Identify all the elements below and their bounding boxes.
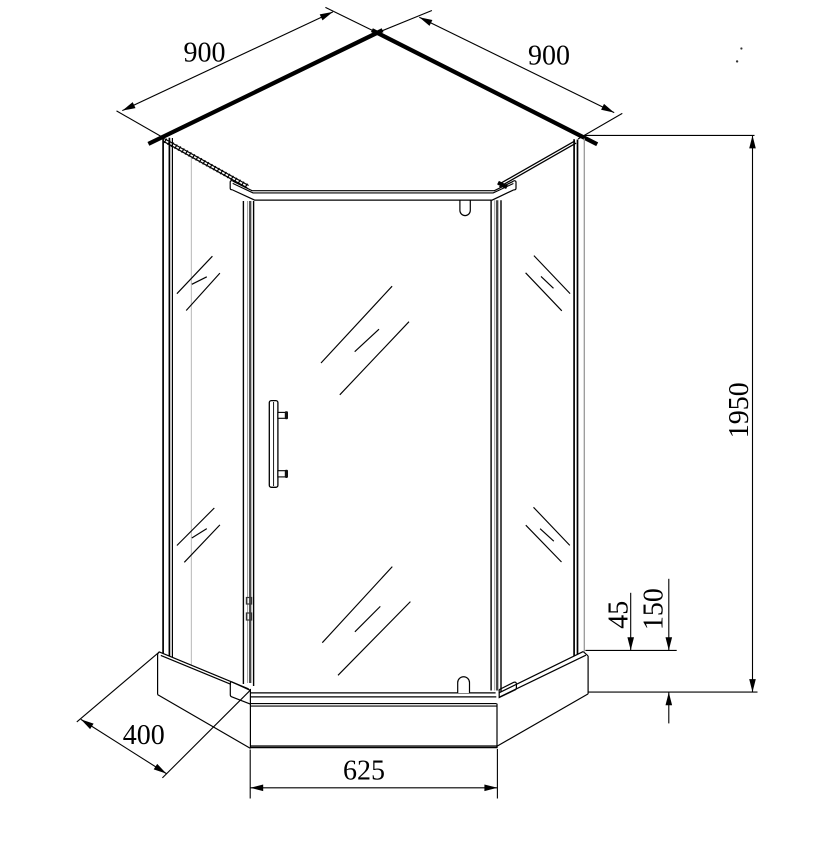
- svg-text:400: 400: [123, 720, 165, 751]
- svg-text:625: 625: [343, 756, 385, 787]
- svg-text:900: 900: [528, 41, 570, 72]
- svg-text:900: 900: [184, 38, 226, 69]
- svg-text:45: 45: [604, 601, 635, 629]
- svg-text:1950: 1950: [724, 382, 755, 438]
- svg-text:150: 150: [639, 588, 670, 630]
